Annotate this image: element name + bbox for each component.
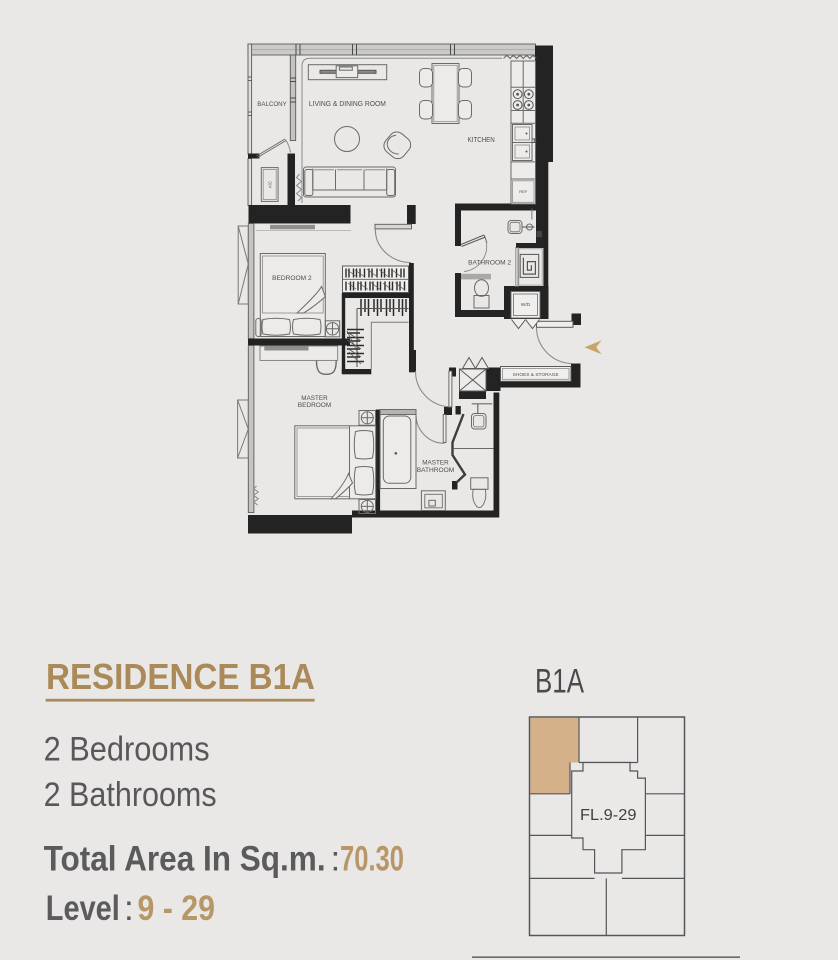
- svg-text:Total Area In Sq.m.: Total Area In Sq.m.: [44, 839, 326, 878]
- svg-text:W/D: W/D: [521, 302, 531, 308]
- svg-text:2 Bathrooms: 2 Bathrooms: [44, 776, 217, 814]
- svg-text:2 Bedrooms: 2 Bedrooms: [44, 731, 210, 769]
- svg-text:MASTER: MASTER: [422, 460, 449, 467]
- svg-text:REF: REF: [519, 189, 528, 194]
- svg-text::: :: [331, 839, 341, 878]
- svg-text::: :: [124, 889, 134, 928]
- svg-text:70.30: 70.30: [340, 839, 404, 878]
- svg-text:BEDROOM: BEDROOM: [298, 402, 332, 409]
- svg-text:B1A: B1A: [535, 663, 584, 701]
- svg-text:BATHROOM: BATHROOM: [417, 467, 455, 474]
- svg-text:SHOES & STORAGE: SHOES & STORAGE: [513, 372, 559, 377]
- svg-text:KITCHEN: KITCHEN: [468, 135, 495, 144]
- svg-text:Level: Level: [46, 889, 120, 928]
- svg-text:LIVING & DINING ROOM: LIVING & DINING ROOM: [309, 99, 386, 108]
- svg-text:RESIDENCE B1A: RESIDENCE B1A: [46, 656, 315, 697]
- svg-text:MASTER: MASTER: [301, 395, 328, 402]
- svg-text:9 - 29: 9 - 29: [138, 889, 216, 928]
- svg-text:FL.9-29: FL.9-29: [580, 807, 637, 824]
- svg-text:BALCONY: BALCONY: [257, 101, 287, 108]
- svg-text:BEDROOM 2: BEDROOM 2: [272, 275, 312, 282]
- svg-text:A/C: A/C: [268, 181, 273, 188]
- svg-text:BATHROOM 2: BATHROOM 2: [468, 260, 511, 267]
